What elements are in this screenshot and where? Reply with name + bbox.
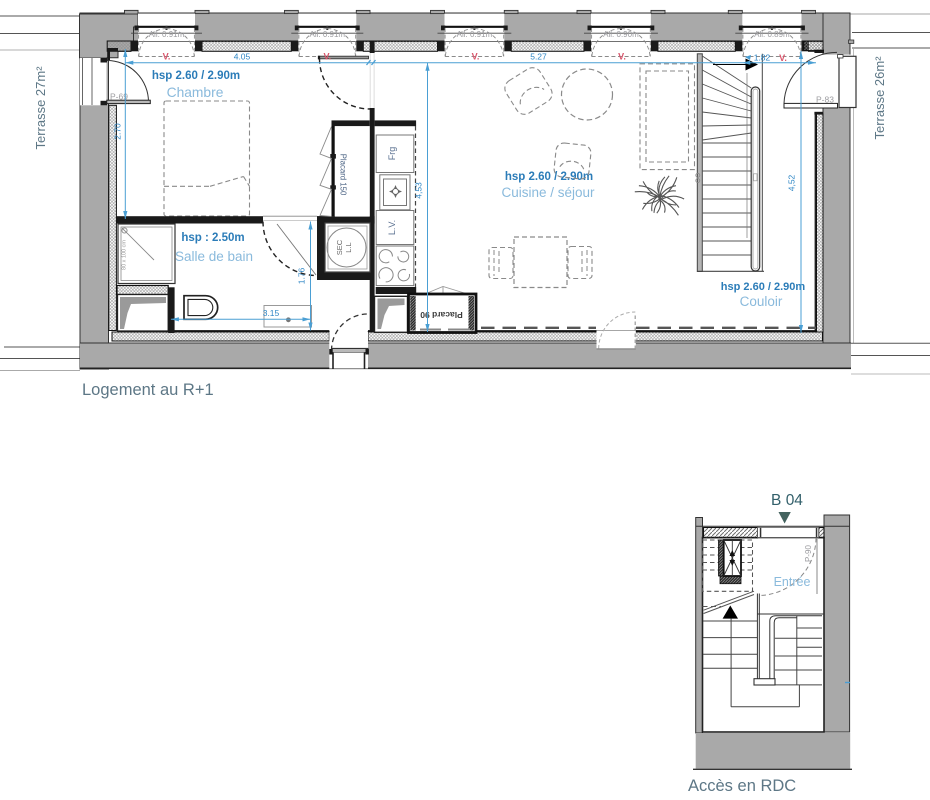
svg-text:hsp 2.60 / 2.90m: hsp 2.60 / 2.90m [721, 281, 806, 293]
svg-text:5.27: 5.27 [530, 52, 547, 62]
svg-text:V.: V. [779, 53, 787, 63]
svg-text:Entrée: Entrée [774, 575, 811, 589]
svg-text:hsp 2.60 / 2.90m: hsp 2.60 / 2.90m [505, 171, 593, 183]
svg-text:Chambre: Chambre [167, 85, 224, 100]
svg-text:Frg: Frg [387, 147, 397, 161]
svg-text:Terrasse 26m²: Terrasse 26m² [872, 56, 887, 140]
svg-text:SEC: SEC [335, 239, 344, 255]
svg-text:Placard 150: Placard 150 [339, 154, 348, 196]
svg-text:Couloir: Couloir [740, 294, 783, 309]
svg-text:V.: V. [472, 52, 480, 62]
svg-text:P-83: P-83 [816, 95, 834, 105]
svg-text:4,53: 4,53 [414, 182, 424, 199]
svg-text:All. 0.90m: All. 0.90m [603, 30, 639, 39]
svg-text:P-90: P-90 [804, 545, 813, 562]
svg-text:Salle de bain: Salle de bain [175, 249, 253, 264]
svg-text:B 04: B 04 [771, 492, 803, 509]
svg-text:Placard 90: Placard 90 [420, 310, 463, 320]
svg-text:1.82: 1.82 [754, 53, 771, 63]
svg-text:hsp : 2.50m: hsp : 2.50m [181, 232, 244, 244]
svg-text:All. 0.91m: All. 0.91m [149, 30, 185, 39]
svg-text:2.70: 2.70 [113, 123, 123, 140]
svg-text:4,52: 4,52 [787, 174, 797, 191]
svg-text:V.: V. [618, 52, 626, 62]
svg-text:4.05: 4.05 [234, 52, 251, 62]
svg-text:All. 0.91m: All. 0.91m [457, 30, 493, 39]
svg-text:80 x 100 cm: 80 x 100 cm [122, 240, 128, 270]
svg-text:hsp 2.60 / 2.90m: hsp 2.60 / 2.90m [152, 70, 240, 82]
svg-text:Cuisine / séjour: Cuisine / séjour [501, 185, 595, 200]
svg-text:L.L: L.L [344, 242, 353, 252]
svg-text:All. 0.91m: All. 0.91m [310, 30, 346, 39]
svg-text:V.: V. [323, 52, 331, 62]
svg-text:1.76: 1.76 [297, 267, 307, 284]
svg-text:V.: V. [163, 52, 171, 62]
svg-text:3.15: 3.15 [263, 308, 280, 318]
svg-text:Logement au R+1: Logement au R+1 [82, 381, 214, 399]
svg-text:All. 0.89m: All. 0.89m [754, 30, 790, 39]
svg-text:L.V.: L.V. [387, 220, 397, 235]
svg-text:Accès en RDC: Accès en RDC [688, 777, 796, 795]
svg-text:Terrasse 27m²: Terrasse 27m² [33, 66, 48, 150]
